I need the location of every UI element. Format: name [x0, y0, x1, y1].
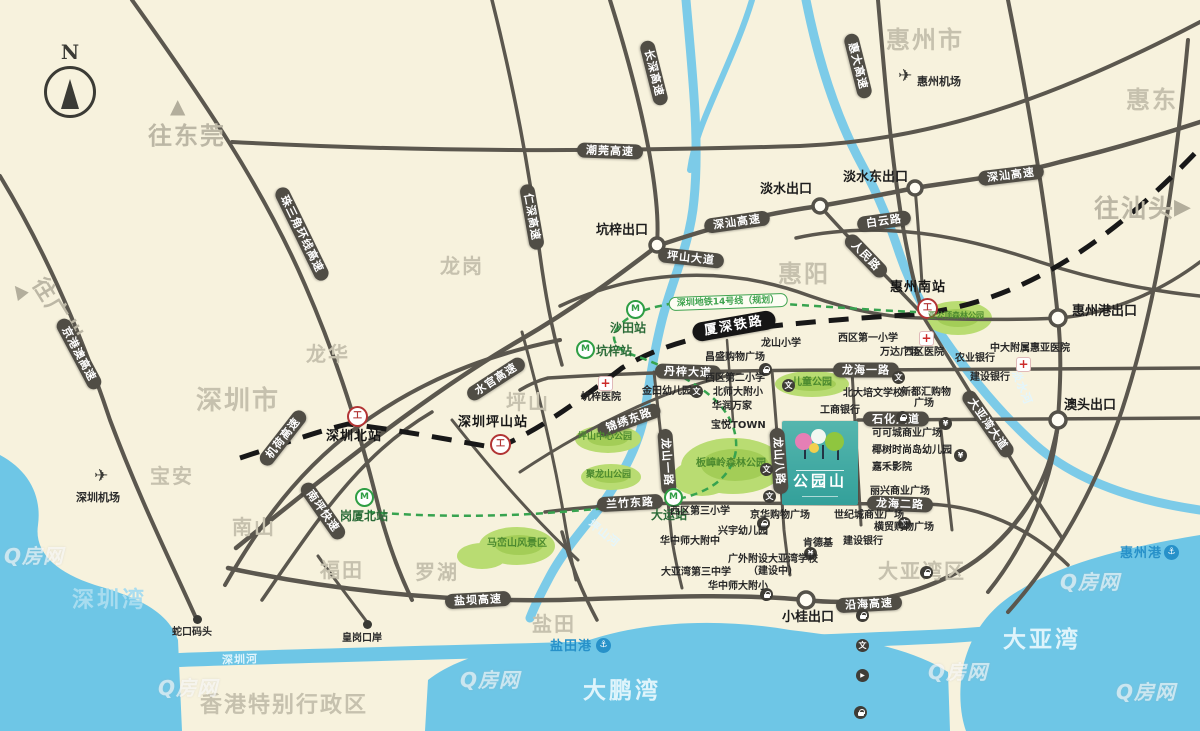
hospital-icon: [919, 331, 934, 346]
poi-label: （建设中）: [748, 567, 798, 577]
park-label: 聚龙山公园: [586, 471, 631, 480]
poi-label: 北大培文学校: [843, 389, 903, 399]
river-label: 深圳河: [222, 653, 258, 665]
park-label: 儿童公园: [792, 378, 832, 388]
pier-label: 皇岗口岸: [342, 634, 382, 644]
metro-station-icon: [576, 340, 595, 359]
metro-station-icon: [626, 300, 645, 319]
watermark: Q房网: [4, 546, 64, 566]
poi-label: 坑梓医院: [581, 393, 621, 403]
region-label: 罗湖: [415, 562, 459, 582]
anchor-icon: [596, 638, 611, 653]
poi-label: 建设银行: [970, 373, 1010, 383]
shopping-icon: [920, 566, 933, 579]
school-icon: [760, 463, 773, 476]
direction-label: 往东莞: [148, 124, 226, 148]
watermark: Q房网: [928, 662, 988, 682]
park-label: 坪山中心公园: [578, 433, 632, 442]
poi-label: 华中师大附中: [660, 537, 720, 547]
poi-label: 横贸购物广场: [874, 523, 934, 533]
poi-label: 西区第一小学: [838, 334, 898, 344]
shopping-icon: [856, 609, 869, 622]
water-label: 深圳湾: [72, 590, 147, 612]
region-label: 香港特别行政区: [200, 695, 368, 717]
rail-station-icon: [490, 434, 511, 455]
region-label: 惠东: [1126, 88, 1178, 112]
poi-label: 椰树时尚岛幼儿园: [872, 446, 952, 456]
poi-label: 西区第二小学: [705, 374, 765, 384]
poi-label: 新都汇购物: [901, 388, 951, 398]
school-icon: [892, 371, 905, 384]
poi-label: 工商银行: [820, 406, 860, 416]
poi-label: 可可城商业广场: [872, 429, 942, 439]
poi-label: 京华购物广场: [750, 511, 810, 521]
poi-label: 广场: [914, 399, 934, 409]
rail-station-icon: [347, 406, 368, 427]
park-label: 马峦山风景区: [487, 539, 547, 549]
poi-label: 世纪城商业广场: [834, 511, 904, 521]
rail-station-label: 惠州南站: [890, 281, 946, 294]
poi-label: 建设银行: [843, 537, 883, 547]
exit-label: 惠州港出口: [1072, 305, 1137, 318]
region-label: 宝安: [150, 466, 194, 486]
poi-label: 兴宇幼儿园: [718, 527, 768, 537]
pier-dot: [193, 615, 202, 624]
region-label: 南山: [232, 517, 276, 537]
water-label: 大亚湾: [1003, 629, 1081, 652]
road-label: 潮莞高速: [577, 142, 643, 159]
hospital-icon: [1016, 357, 1031, 372]
school-icon: [690, 385, 703, 398]
metro-station-label: 坑梓站: [596, 345, 632, 357]
map-canvas: N 公园山 深圳市惠州市惠东惠阳坪山龙华龙岗宝安南山福田罗湖盐田大亚湾区香港特别…: [0, 0, 1200, 731]
water-label: 大鹏湾: [583, 680, 661, 703]
exit-label: 淡水出口: [760, 183, 812, 196]
park-label: 亚公顶森林公园: [928, 312, 984, 320]
poi-label: 中大附属惠亚医院: [990, 344, 1070, 354]
exit-label: 淡水东出口: [843, 171, 908, 184]
watermark: Q房网: [460, 670, 520, 690]
poi-label: 龙山小学: [761, 339, 801, 349]
port-label: 盐田港: [550, 640, 592, 653]
metro-station-icon: [664, 488, 683, 507]
poi-label: 宝悦TOWN: [711, 421, 766, 431]
pier-label: 蛇口码头: [172, 628, 212, 638]
poi-label: 大亚湾第三中学: [661, 568, 731, 578]
park-label: 板嶂岭森林公园: [696, 459, 766, 469]
exit-label: 小桂出口: [782, 611, 834, 624]
project-logo-trees-icon: [782, 427, 858, 461]
shopping-icon: [854, 706, 867, 719]
hospital-icon: [598, 376, 613, 391]
poi-label: 农业银行: [955, 354, 995, 364]
rail-station-label: 深圳坪山站: [458, 416, 528, 429]
airport-label: 惠州机场: [917, 76, 961, 87]
region-label: 龙岗: [440, 256, 484, 276]
poi-label: 昌盛购物广场: [705, 353, 765, 363]
region-label: 惠州市: [886, 28, 964, 52]
compass: N: [44, 40, 96, 118]
poi-label: 广外附设大亚湾学校: [728, 555, 818, 565]
metro-station-icon: [355, 488, 374, 507]
poi-label: 金田幼儿园: [642, 387, 692, 397]
poi-label: 华中师大附小: [708, 582, 768, 592]
metro-station-label: 岗厦北站: [340, 510, 388, 522]
poi-label: 西区医院: [904, 348, 944, 358]
cinema-icon: [856, 669, 869, 682]
road-label: 龙海一路: [833, 363, 899, 378]
school-icon: [856, 639, 869, 652]
region-label: 福田: [320, 560, 364, 580]
airport-icon: ✈: [94, 468, 108, 485]
project-marker-gongyuanshan: 公园山: [782, 421, 858, 505]
region-label: 盐田: [532, 614, 576, 634]
poi-label: 丽兴商业广场: [870, 487, 930, 497]
compass-ring-icon: [44, 66, 96, 118]
poi-label: 华润万家: [712, 402, 752, 412]
rail-station-label: 深圳北站: [326, 430, 382, 443]
metro-station-label: 沙田站: [610, 322, 646, 334]
exit-label: 澳头出口: [1064, 399, 1116, 412]
watermark: Q房网: [1060, 572, 1120, 592]
region-label: 龙华: [306, 344, 350, 364]
port-label: 惠州港: [1120, 547, 1162, 560]
poi-label: 西区第三小学: [670, 507, 730, 517]
exit-label: 坑梓出口: [596, 224, 648, 237]
pier-dot: [363, 620, 372, 629]
direction-arrow-icon: ▶: [1174, 197, 1191, 219]
anchor-icon: [1164, 545, 1179, 560]
watermark: Q房网: [158, 678, 218, 698]
direction-arrow-icon: ▲: [170, 96, 185, 116]
direction-label: 往汕头: [1094, 196, 1175, 221]
school-icon: [782, 379, 795, 392]
project-title: 公园山: [782, 470, 858, 491]
shopping-icon: [896, 411, 909, 424]
watermark: Q房网: [1116, 682, 1176, 702]
airport-label: 深圳机场: [76, 492, 120, 503]
region-label: 深圳市: [196, 388, 280, 414]
poi-label: 肯德基: [803, 539, 833, 549]
poi-label: 北师大附小: [713, 388, 763, 398]
region-label: 坪山: [506, 392, 550, 412]
region-label: 惠阳: [778, 262, 830, 286]
compass-n-label: N: [44, 40, 96, 64]
school-icon: [763, 490, 776, 503]
airport-icon: ✈: [898, 68, 912, 85]
poi-label: 嘉禾影院: [872, 463, 912, 473]
bank-icon: [954, 449, 967, 462]
